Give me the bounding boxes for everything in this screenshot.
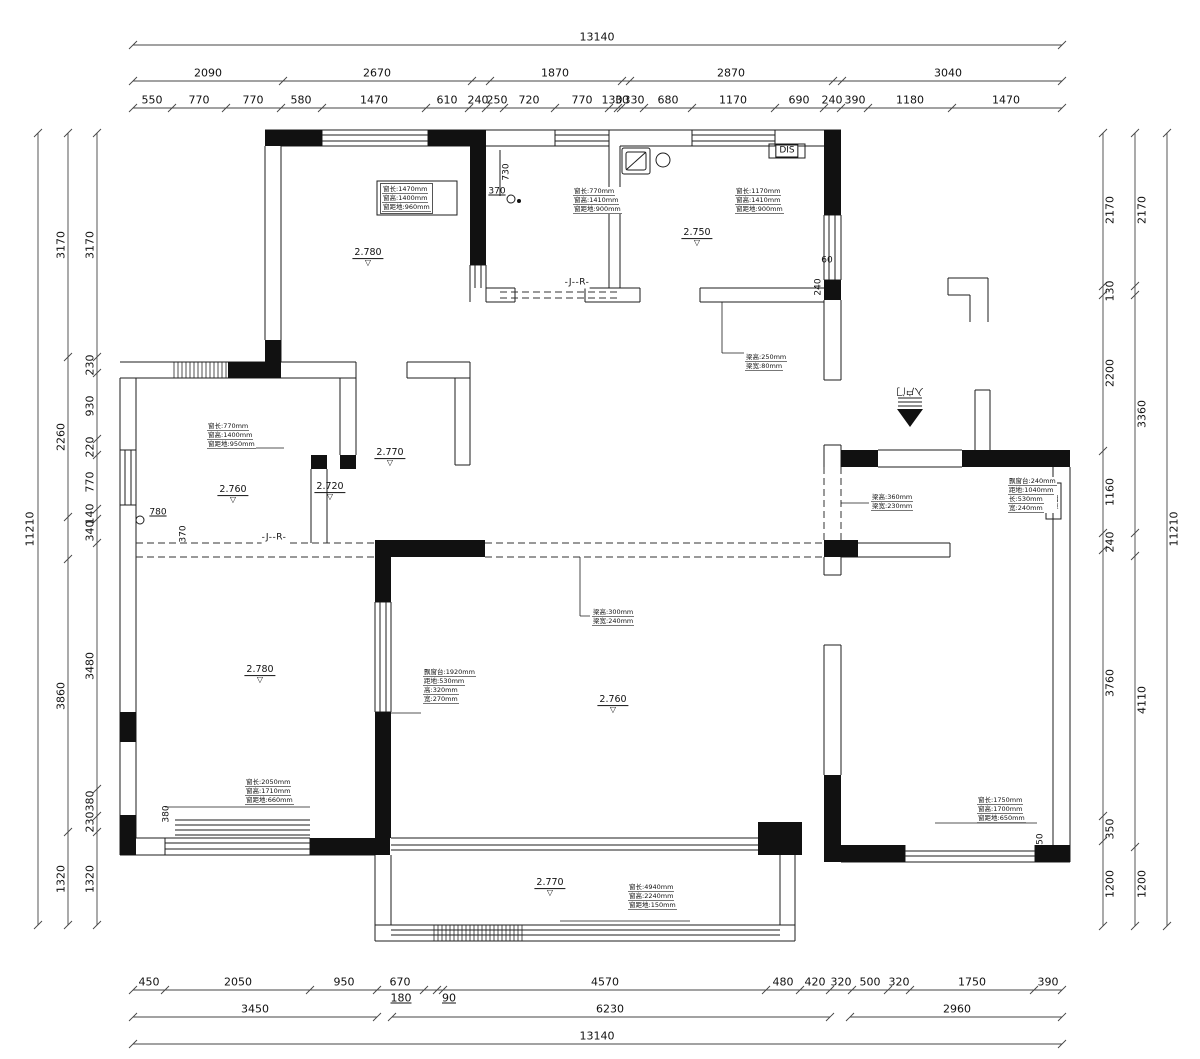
dim-label: 320 — [831, 977, 852, 988]
level-label: 2.760▽ — [217, 485, 248, 503]
dim-label: 2090 — [194, 68, 222, 79]
dim-label: 670 — [390, 977, 411, 988]
annotation-block: 梁高:250mm梁宽:80mm — [745, 353, 787, 371]
annotation-block: 飘窗台:1920mm距地:530mm高:320mm宽:270mm — [423, 668, 476, 704]
annotation-line: 窗距地:650mm — [977, 814, 1026, 823]
annotation-line: 窗高:1410mm — [735, 196, 781, 205]
dim-label: 13140 — [580, 32, 615, 43]
dim-label: 1750 — [958, 977, 986, 988]
annotation-line: 窗高:1710mm — [245, 787, 291, 796]
annotation-line: 窗长:1470mm — [382, 185, 428, 194]
dim-label: 2260 — [56, 423, 67, 451]
annotation-line: 窗长:770mm — [207, 422, 249, 431]
annotation-line: 窗高:1400mm — [382, 194, 428, 203]
annotation-line: 窗长:1750mm — [977, 796, 1023, 805]
annotation-line: 窗距地:150mm — [628, 901, 677, 910]
level-label: 2.760▽ — [597, 695, 628, 713]
annotation-line: 窗长:770mm — [573, 187, 615, 196]
annotation-block: 窗长:770mm窗高:1400mm窗距地:950mm — [207, 422, 256, 449]
dim-label: 250 — [487, 95, 508, 106]
dim-label: 500 — [860, 977, 881, 988]
dim-label: 90 — [442, 993, 456, 1004]
dim-label: 13140 — [580, 1031, 615, 1042]
dim-label: 780 — [149, 508, 166, 519]
dim-label: 2670 — [363, 68, 391, 79]
dim-label: 1320 — [56, 865, 67, 893]
dim-label: 1320 — [85, 865, 96, 893]
annotation-line: 窗距地:660mm — [245, 796, 294, 805]
dim-label: 2200 — [1105, 359, 1116, 387]
annotation-block: 窗长:770mm窗高:1410mm窗距地:900mm — [573, 187, 622, 214]
annotation-line: 窗长:1170mm — [735, 187, 781, 196]
annotation-line: 梁宽:230mm — [871, 502, 913, 511]
floor-plan-page: 烟道 1314020902670187028703040550770770580… — [0, 0, 1200, 1059]
dim-label: 3170 — [56, 231, 67, 259]
annotation-line: 梁宽:240mm — [592, 617, 634, 626]
annotation-block: 梁高:360mm梁宽:230mm — [871, 493, 913, 511]
annotation-block: 窗长:4940mm窗高:2240mm窗距地:150mm — [628, 883, 677, 910]
dim-label: 230 — [85, 355, 96, 376]
dim-label: 390 — [845, 95, 866, 106]
dim-label: 370 — [179, 525, 190, 542]
dim-label: 220 — [85, 437, 96, 458]
dim-label: 770 — [572, 95, 593, 106]
annotation-block: 窗长:1170mm窗高:1410mm窗距地:900mm — [735, 187, 784, 214]
annotation-line: 飘窗台:240mm — [1008, 477, 1057, 486]
annotation-line: 梁宽:80mm — [745, 362, 783, 371]
dim-label: 3480 — [85, 652, 96, 680]
dim-label: 240 — [468, 95, 489, 106]
dim-label: 1170 — [719, 95, 747, 106]
dim-label: 3040 — [934, 68, 962, 79]
annotation-line: 距地:1040mm — [1008, 486, 1054, 495]
annotation-line: 飘窗台:1920mm — [423, 668, 476, 677]
dim-label: 320 — [889, 977, 910, 988]
level-label: 2.770▽ — [534, 878, 565, 896]
dim-label: 380 — [162, 805, 173, 822]
dim-label: 3170 — [85, 231, 96, 259]
dim-label: 350 — [1105, 819, 1116, 840]
dim-label: 2050 — [224, 977, 252, 988]
dim-label: 680 — [658, 95, 679, 106]
dim-label: -J--R- — [262, 533, 287, 544]
annotation-line: 梁高:300mm — [592, 608, 634, 617]
dim-label: 720 — [519, 95, 540, 106]
dim-label: 930 — [85, 396, 96, 417]
dim-label: 4110 — [1137, 686, 1148, 714]
dim-label: 420 — [805, 977, 826, 988]
dim-label: 130 — [1105, 281, 1116, 302]
dim-label: 3450 — [241, 1004, 269, 1015]
dim-label: 1870 — [541, 68, 569, 79]
dim-label: 2170 — [1105, 196, 1116, 224]
dim-label: 230 — [85, 812, 96, 833]
annotation-line: 窗距地:900mm — [735, 205, 784, 214]
dim-label: 690 — [789, 95, 810, 106]
annotation-line: 梁高:250mm — [745, 353, 787, 362]
dim-label: 11210 — [1169, 512, 1180, 547]
annotation-block: 梁高:300mm梁宽:240mm — [592, 608, 634, 626]
label-layer: 烟道 1314020902670187028703040550770770580… — [0, 0, 1200, 1059]
dim-label: 入户门 — [896, 385, 923, 396]
dim-label: 2170 — [1137, 196, 1148, 224]
annotation-line: 宽:240mm — [1008, 504, 1044, 513]
dim-label: 1180 — [896, 95, 924, 106]
annotation-line: 窗距地:900mm — [573, 205, 622, 214]
annotation-line: 距地:530mm — [423, 677, 465, 686]
dim-label: 1470 — [992, 95, 1020, 106]
dim-label: 610 — [437, 95, 458, 106]
dim-label: 770 — [189, 95, 210, 106]
dim-label: 1200 — [1105, 870, 1116, 898]
dim-label: 450 — [139, 977, 160, 988]
dim-label: 730 — [502, 163, 513, 180]
dim-label: 370 — [488, 187, 505, 198]
annotation-line: 窗长:4940mm — [628, 883, 674, 892]
annotation-line: 窗高:1410mm — [573, 196, 619, 205]
dim-label: 550 — [142, 95, 163, 106]
annotation-line: 窗距地:960mm — [382, 203, 431, 212]
dim-label: 240 — [822, 95, 843, 106]
dim-label: 6230 — [596, 1004, 624, 1015]
dim-label: 60 — [821, 256, 832, 267]
annotation-line: 窗长:2050mm — [245, 778, 291, 787]
annotation-block: 窗长:2050mm窗高:1710mm窗距地:660mm — [245, 778, 294, 805]
level-label: 2.750▽ — [681, 228, 712, 246]
dim-label: 180 — [391, 993, 412, 1004]
level-label: 2.720▽ — [314, 482, 345, 500]
dim-label: 1200 — [1137, 870, 1148, 898]
dim-label: 3760 — [1105, 669, 1116, 697]
dim-label: 380 — [85, 791, 96, 812]
annotation-line: 窗距地:950mm — [207, 440, 256, 449]
annotation-block: 窗长:1470mm窗高:1400mm窗距地:960mm — [380, 183, 433, 214]
dim-label: 2870 — [717, 68, 745, 79]
dim-label: 340 — [85, 521, 96, 542]
annotation-line: 窗高:2240mm — [628, 892, 674, 901]
annotation-block: 窗长:1750mm窗高:1700mm窗距地:650mm — [977, 796, 1026, 823]
dim-label: 950 — [334, 977, 355, 988]
dim-label: 4570 — [591, 977, 619, 988]
dim-label: 390 — [1038, 977, 1059, 988]
dim-label: 3360 — [1137, 400, 1148, 428]
dim-label: -J--R- — [565, 278, 590, 289]
dim-label: 2960 — [943, 1004, 971, 1015]
annotation-block: 飘窗台:240mm距地:1040mm长:530mm宽:240mm — [1008, 477, 1057, 513]
dim-label: 11210 — [25, 512, 36, 547]
level-label: 2.770▽ — [374, 448, 405, 466]
dim-label: DIS — [775, 145, 798, 158]
dim-label: 1160 — [1105, 478, 1116, 506]
level-label: 2.780▽ — [244, 665, 275, 683]
dim-label: 240 — [1105, 532, 1116, 553]
dim-label: 350 — [1036, 833, 1047, 850]
annotation-line: 梁高:360mm — [871, 493, 913, 502]
dim-label: 330 — [624, 95, 645, 106]
dim-label: 580 — [291, 95, 312, 106]
annotation-line: 窗高:1400mm — [207, 431, 253, 440]
dim-label: 480 — [773, 977, 794, 988]
annotation-line: 高:320mm — [423, 686, 459, 695]
dim-label: 1470 — [360, 95, 388, 106]
annotation-line: 窗高:1700mm — [977, 805, 1023, 814]
level-label: 2.780▽ — [352, 248, 383, 266]
annotation-line: 宽:270mm — [423, 695, 459, 704]
dim-label: 770 — [85, 472, 96, 493]
dim-label: 240 — [814, 278, 825, 295]
dim-label: 770 — [243, 95, 264, 106]
dim-label: 3860 — [56, 682, 67, 710]
annotation-line: 长:530mm — [1008, 495, 1044, 504]
